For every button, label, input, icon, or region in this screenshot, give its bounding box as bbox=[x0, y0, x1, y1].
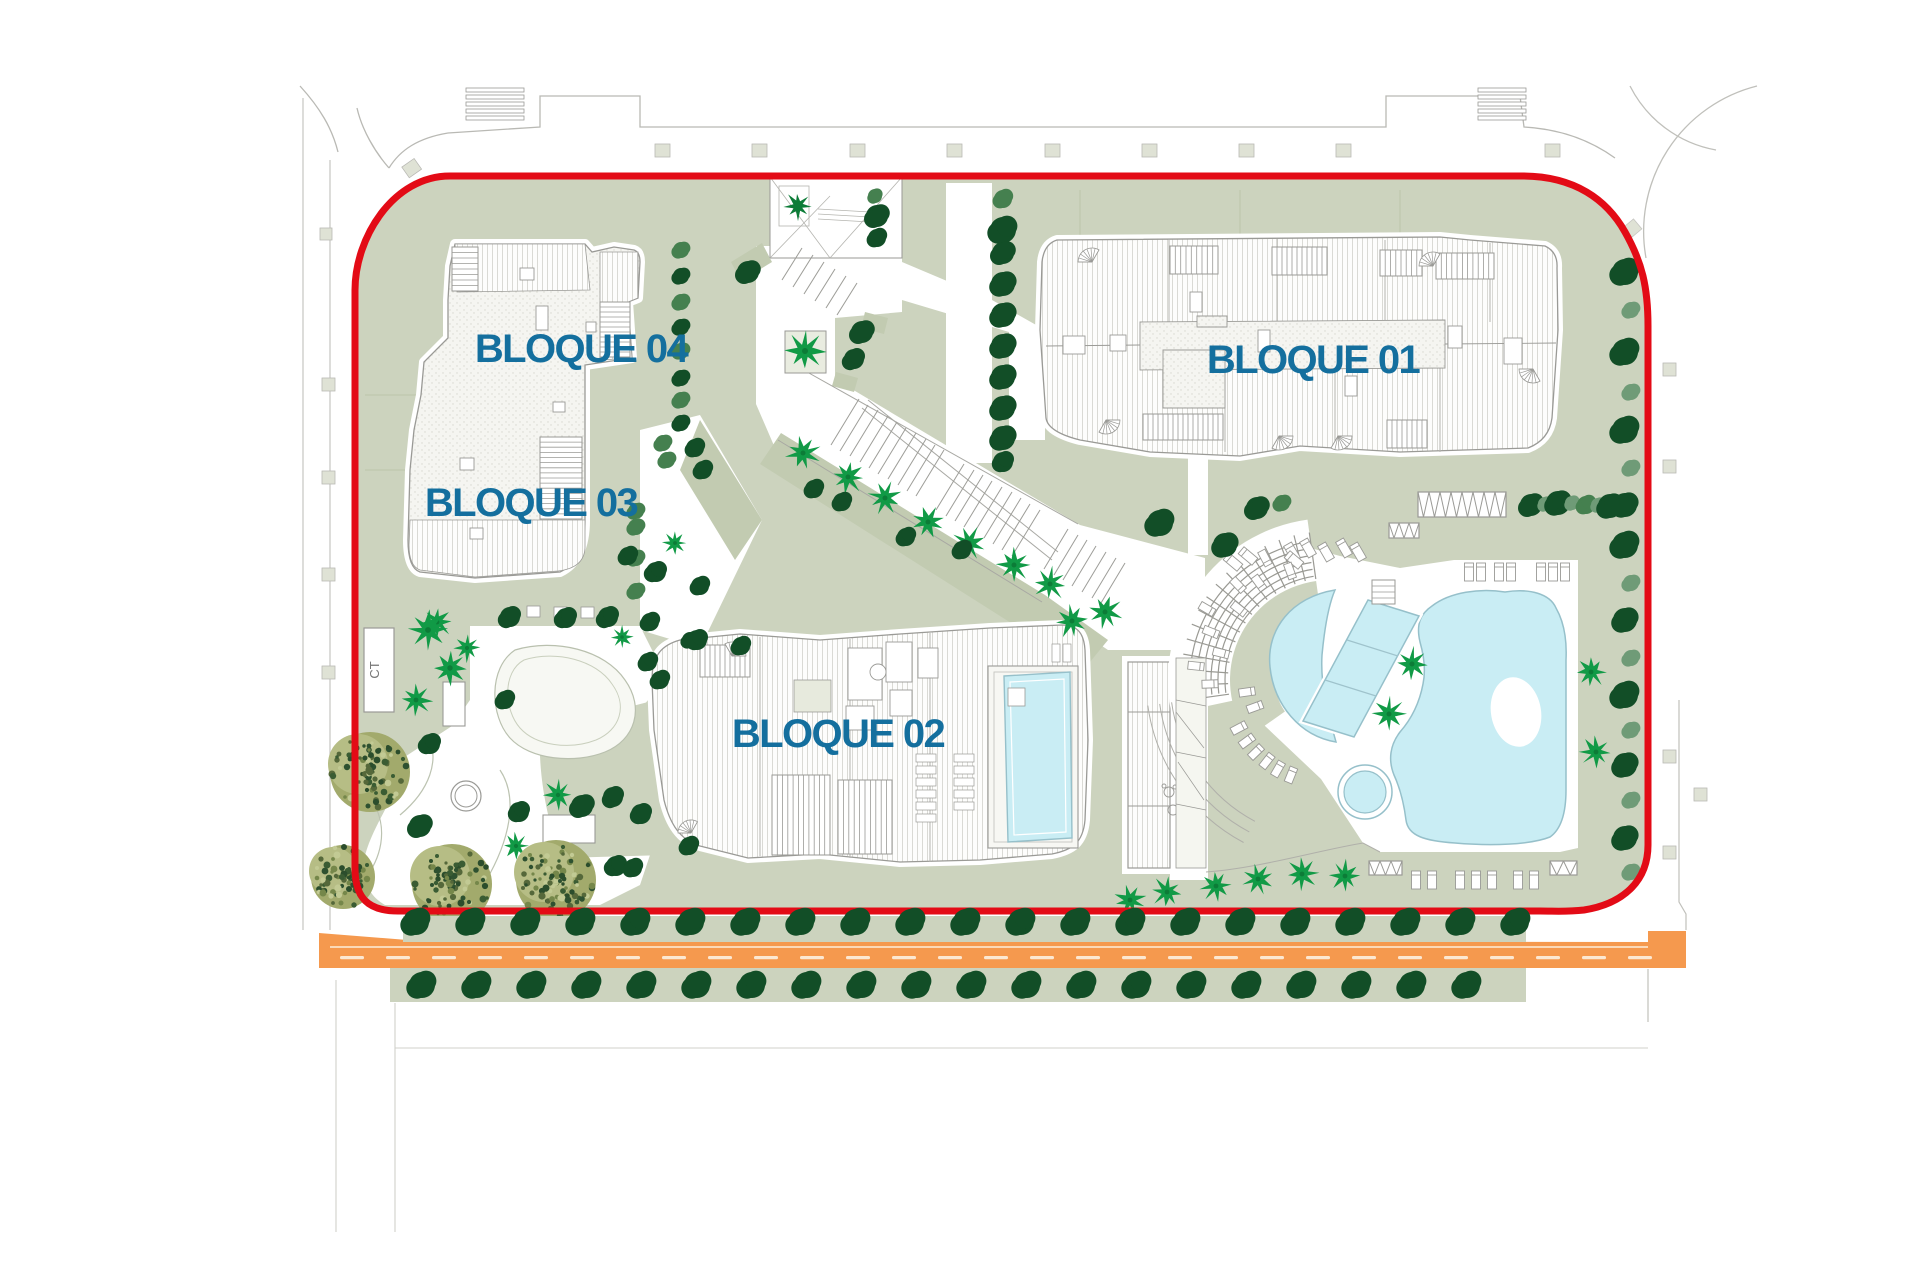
svg-text:CT: CT bbox=[367, 661, 382, 678]
svg-text:BLOQUE 01: BLOQUE 01 bbox=[1207, 338, 1421, 382]
svg-text:BLOQUE 02: BLOQUE 02 bbox=[732, 712, 945, 756]
svg-text:BLOQUE 04: BLOQUE 04 bbox=[475, 327, 690, 371]
svg-text:BLOQUE 03: BLOQUE 03 bbox=[425, 481, 638, 525]
